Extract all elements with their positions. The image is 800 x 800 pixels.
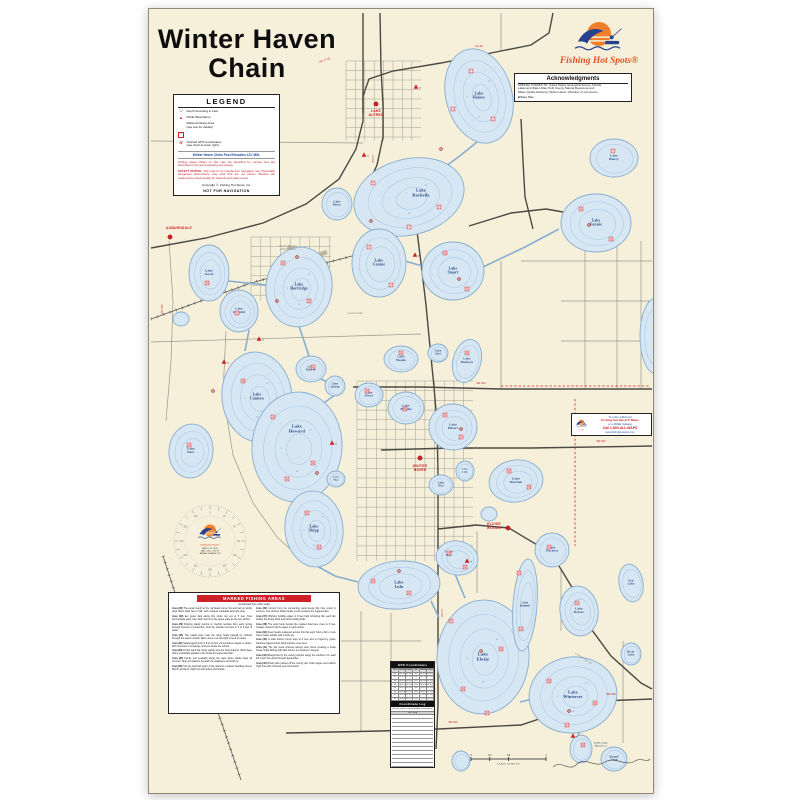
fishing-area-paragraph: Area (37) Offshore hydrilla edges in 9 f… [256, 615, 336, 621]
fishing-area-marker: 49 [187, 443, 191, 447]
order-box-text: To order additional Fishing Hot Spots® M… [591, 416, 649, 434]
city-marker: ELOISEWOODS [487, 522, 510, 530]
city-label: LAKEALFRED [369, 109, 384, 117]
map-title-line1: Winter Haven [155, 25, 339, 54]
acknowledgments-line: Water Quality Divisions; Winter Haven Ch… [518, 91, 628, 95]
fishing-area-marker: 38 [499, 647, 503, 651]
fishing-area-marker: 48 [581, 743, 585, 747]
lake-label: LakeEloise [477, 652, 490, 662]
legend-item-ramp: ▲ Public Boat Ramp [178, 116, 275, 120]
fishing-area-marker: 3 [451, 107, 455, 111]
fishing-area-marker: 18 [241, 379, 245, 383]
fishing-area-marker: 27 [459, 435, 463, 439]
page: 51015LakeHainesLakeHenry51015LakeRochell… [0, 0, 800, 800]
fishing-area-marker: 37 [449, 619, 453, 623]
fishing-area-marker: 5 [371, 181, 375, 185]
road-label: US 92 [475, 44, 483, 48]
gps-point-icon [211, 389, 215, 393]
legend-item-label: Marked Fishing Area (see text for detail… [187, 122, 215, 130]
fishing-area-marker: 43 [547, 545, 551, 549]
gps-point-icon: ⊕ [178, 141, 184, 145]
fishing-area-marker: 22 [311, 365, 315, 369]
svg-text:B: B [262, 340, 264, 342]
fishing-area-marker: 20 [311, 461, 315, 465]
lake-shape [452, 751, 470, 771]
compass-note-line: ANNUAL CHANGE 2' W [200, 552, 221, 555]
lake-label: LakePansy [333, 201, 342, 207]
lake-label: LakeMay [333, 476, 340, 482]
scale-tick-label: 1/4 [488, 754, 492, 757]
compass-brand-text: Fishing Hot Spots® [200, 544, 220, 547]
lake-label: RiverLake [627, 651, 635, 657]
fishing-area-paragraph: Area (42) Bluegill bed in the sandy pock… [256, 654, 336, 660]
place-label: Lucerne Park [347, 311, 363, 315]
lake-label: LakeDeer [187, 447, 195, 454]
lake-shape [173, 312, 189, 326]
lake-shape [481, 507, 497, 521]
fishing-area-marker: 31 [305, 511, 309, 515]
scale-tick-label: 1 [545, 754, 547, 757]
fishing-area-marker: 15 [307, 299, 311, 303]
map-title: Winter Haven Chain [155, 25, 339, 83]
lake-label: LakeSmart [448, 267, 459, 275]
compass-degree-label: 150 [222, 566, 227, 568]
not-for-navigation: NOT FOR NAVIGATION [178, 189, 275, 193]
acknowledgments-panel: Acknowledgments SPECIAL THANKS TO: Unite… [514, 73, 632, 102]
marked-fishing-areas-panel: MARKED FISHING AREAS (Continued from oth… [168, 592, 340, 714]
fishing-area-paragraph: Area (30) Flipping plastic worms or cray… [172, 623, 252, 632]
fishing-area-marker: 8 [367, 245, 371, 249]
boat-ramp-icon: B [414, 84, 422, 89]
fishing-area-paragraph: Area (35) The lily pad field south of th… [172, 665, 252, 671]
road-label: SR 542 [596, 439, 606, 443]
fishing-area-marker: 2 [491, 117, 495, 121]
fishing-area-marker: 21 [285, 477, 289, 481]
fishing-area-marker: 6 [437, 205, 441, 209]
sounding-icon: 12 [178, 110, 184, 113]
boat-ramp-icon: B [222, 359, 230, 364]
lake-label: LakeLulu [394, 581, 404, 589]
coordinate-log-blank-line [392, 763, 433, 767]
fishing-area-marker: 45 [547, 679, 551, 683]
fishing-area-marker: 26 [443, 413, 447, 417]
lake-shape [640, 298, 653, 374]
scale-tick-label: 1/2 [507, 754, 511, 757]
fishing-area-marker: 19 [271, 415, 275, 419]
fishing-area-paragraph: Area (36) Current from the connecting ca… [256, 607, 336, 613]
fishing-area-paragraph: Area (33) A hard sand bar drops quickly … [172, 649, 252, 655]
svg-text:B: B [419, 88, 421, 90]
road-label: CR 655 [160, 304, 164, 314]
legend-item-label: Public Boat Ramp [187, 116, 211, 120]
fishing-area-marker: 42 [519, 627, 523, 631]
city-label: ELOISEWOODS [487, 522, 502, 530]
fishing-hot-spots-logo: Fishing Hot Spots® [553, 17, 645, 71]
compass-degree-label: 330 [194, 516, 199, 518]
acknowledgments-bullet: ■ Base Map [518, 95, 628, 99]
fishing-area-paragraph: Area (31) The cattail point near the ram… [172, 634, 252, 640]
fishing-area-marker: 33 [371, 579, 375, 583]
brand-logo-art: Fishing Hot Spots® [553, 17, 645, 71]
brand-logo-text: Fishing Hot Spots® [559, 55, 638, 66]
boat-ramp-icon: B [362, 152, 370, 157]
map-poster: 51015LakeHainesLakeHenry51015LakeRochell… [148, 8, 654, 794]
city-marker: AUBURNDALE [166, 226, 192, 239]
gps-point-icon [439, 147, 443, 151]
fishing-area-marker: 30 [527, 485, 531, 489]
lake-shape [345, 147, 472, 248]
fishing-area-marker: 40 [485, 711, 489, 715]
boat-ramp-icon: ▲ [178, 116, 184, 120]
fishing-area-marker: 1 [469, 69, 473, 73]
compass-degree-label: 180 [208, 569, 213, 571]
fishing-area-paragraph: Area (40) A shell bottom hump tops at 6 … [256, 638, 336, 644]
marked-areas-header: MARKED FISHING AREAS [197, 595, 312, 602]
svg-text:B: B [367, 156, 369, 158]
legend-item-gps: ⊕ Charted GPS Coordinates (see chart at … [178, 141, 275, 149]
fishing-area-marker: 32 [317, 545, 321, 549]
fishing-area-paragraph: Area (32) Submerged brush in 8 to 10 fee… [172, 642, 252, 648]
fishing-area-marker: 7 [407, 225, 411, 229]
gps-coordinates-panel: GPS Coordinates SymLatitudeLongitudeSymL… [390, 661, 435, 768]
road-label: US 17 [440, 609, 444, 617]
copyright-line: Copyright ©, Fishing Hot Spots, Inc. [178, 183, 275, 187]
fishing-area-marker: 35 [447, 551, 451, 555]
compass-logo-icon [198, 525, 221, 539]
compass-degree-label: 270 [180, 541, 185, 543]
gps-row: W828°03.21'81°43.74'W1627°59.20'81°42.33… [392, 697, 434, 701]
fishing-area-marker: 46 [593, 701, 597, 705]
compass-degree-label: 210 [194, 566, 199, 568]
legend-item-label: Depth Sounding in Feet [187, 110, 219, 114]
compass-degree-label: 30 [223, 516, 226, 518]
road-label: SR 540 [448, 720, 458, 724]
compass-rose: 0306090120150180210240270300330Fishing H… [174, 505, 246, 577]
marked-areas-note: (Continued from other side) [172, 603, 336, 606]
compass-note-line: MAG. DECL. 4°30' W [201, 550, 219, 553]
fishing-area-marker: 13 [609, 237, 613, 241]
safety-notice: SAFETY NOTICE: This map is not intended … [178, 170, 275, 181]
city-label: AUBURNDALE [166, 226, 192, 230]
legend-item-area: 9 Marked Fishing Area (see text for deta… [178, 122, 275, 138]
legend-panel: LEGEND 12 Depth Sounding in Feet ▲ Publi… [173, 94, 280, 196]
fishing-area-icon: 9 [178, 132, 184, 138]
order-box-logo-icon: FHS [574, 419, 589, 431]
fishing-area-marker: 11 [465, 287, 469, 291]
gps-table: SymLatitudeLongitudeSymLatitudeLongitude… [391, 668, 434, 701]
place-label: Winter Haven'sGilbert Airport [279, 244, 297, 251]
compass-note-line: MAP IS U.S. GRID [202, 547, 218, 550]
compass-degree-label: 90 [237, 541, 240, 543]
compass-degree-label: 120 [233, 555, 238, 557]
lake-label: Little LakeWinterset [594, 742, 608, 748]
fishing-area-paragraph: Area (28) The canal mouth at the northea… [172, 607, 252, 613]
legend-red-note: Fishing areas shown on this map are iden… [178, 161, 275, 168]
compass-degree-label: 60 [233, 527, 236, 529]
fishing-area-paragraph: Area (43) Brush piles placed off the cou… [256, 662, 336, 668]
compass-degree-label: 240 [183, 555, 188, 557]
fishing-area-marker: 36 [463, 565, 467, 569]
map-title-line2: Chain [155, 54, 339, 83]
fishing-area-marker: 25 [465, 351, 469, 355]
order-website: www.fishinghotspots.com [591, 431, 649, 434]
scale-caption: SCALE IN MILES [497, 762, 520, 765]
lake-shape [433, 538, 480, 579]
fishing-area-marker: 29 [507, 469, 511, 473]
fishing-area-marker: 10 [443, 251, 447, 255]
scale-bar: 01/41/21SCALE IN MILES [470, 754, 547, 766]
fishing-area-marker: 44 [575, 601, 579, 605]
lake-label: LakeFannie [590, 219, 602, 227]
fishing-area-paragraph: Area (38) The spoil bank beside the mark… [256, 623, 336, 629]
legend-title: LEGEND [178, 97, 275, 108]
coordinate-log-blank-rows [391, 715, 434, 767]
fishing-area-marker: 24 [399, 351, 403, 355]
fishing-area-marker: 17 [235, 311, 239, 315]
fishing-area-marker: 47 [565, 723, 569, 727]
fishing-area-marker: 28 [403, 407, 407, 411]
fishing-area-paragraph: Area (29) Eel grass flats along this sho… [172, 615, 252, 621]
fishing-area-marker: 23 [365, 389, 369, 393]
legend-item-sounding: 12 Depth Sounding in Feet [178, 110, 275, 114]
compass-degree-label: 300 [183, 527, 188, 529]
legend-item-label: Charted GPS Coordinates (see chart at lo… [187, 141, 222, 149]
fishing-area-marker: 39 [461, 687, 465, 691]
road-label: US 17 [371, 155, 375, 163]
fishing-area-marker: 9 [389, 283, 393, 287]
lake-label: LakeShipp [309, 525, 319, 533]
city-marker: LAKEALFRED [369, 102, 384, 117]
fishing-area-paragraph: Area (41) The old creek channel swings n… [256, 646, 336, 652]
road-label: SR 540 [606, 692, 616, 696]
marked-areas-text-columns: Area (28) The canal mouth at the northea… [172, 607, 336, 671]
svg-text:FHS: FHS [578, 429, 584, 431]
fishing-area-marker: 4 [611, 149, 615, 153]
fishing-area-marker: 16 [205, 281, 209, 285]
fishing-area-marker: 12 [579, 207, 583, 211]
road-label: SR 544 [476, 381, 486, 385]
scale-tick-label: 0 [470, 754, 472, 757]
fishing-area-marker: 14 [281, 261, 285, 265]
lake-label: LakeJessie [204, 269, 214, 277]
svg-text:B: B [227, 363, 229, 365]
city-label: WINTERHAVEN [413, 464, 428, 472]
fishing-area-paragraph: Area (39) Reed heads scattered across th… [256, 631, 336, 637]
pool-elevation-note: Winter Haven Chain Pool Elevation 131' M… [178, 151, 275, 159]
lake-shape [570, 735, 592, 763]
lake-label: LakeHenry [609, 154, 619, 162]
lake-label: LakeLink [462, 468, 469, 474]
city-marker: WINTERHAVEN [413, 456, 428, 472]
order-box: FHS To order additional Fishing Hot Spot… [571, 413, 652, 436]
fishing-area-marker: 41 [517, 571, 521, 575]
fishing-area-paragraph: Area (34) Docks and seawalls along the w… [172, 657, 252, 663]
fishing-area-marker: 34 [407, 591, 411, 595]
compass-degree-label: 0 [209, 512, 211, 514]
